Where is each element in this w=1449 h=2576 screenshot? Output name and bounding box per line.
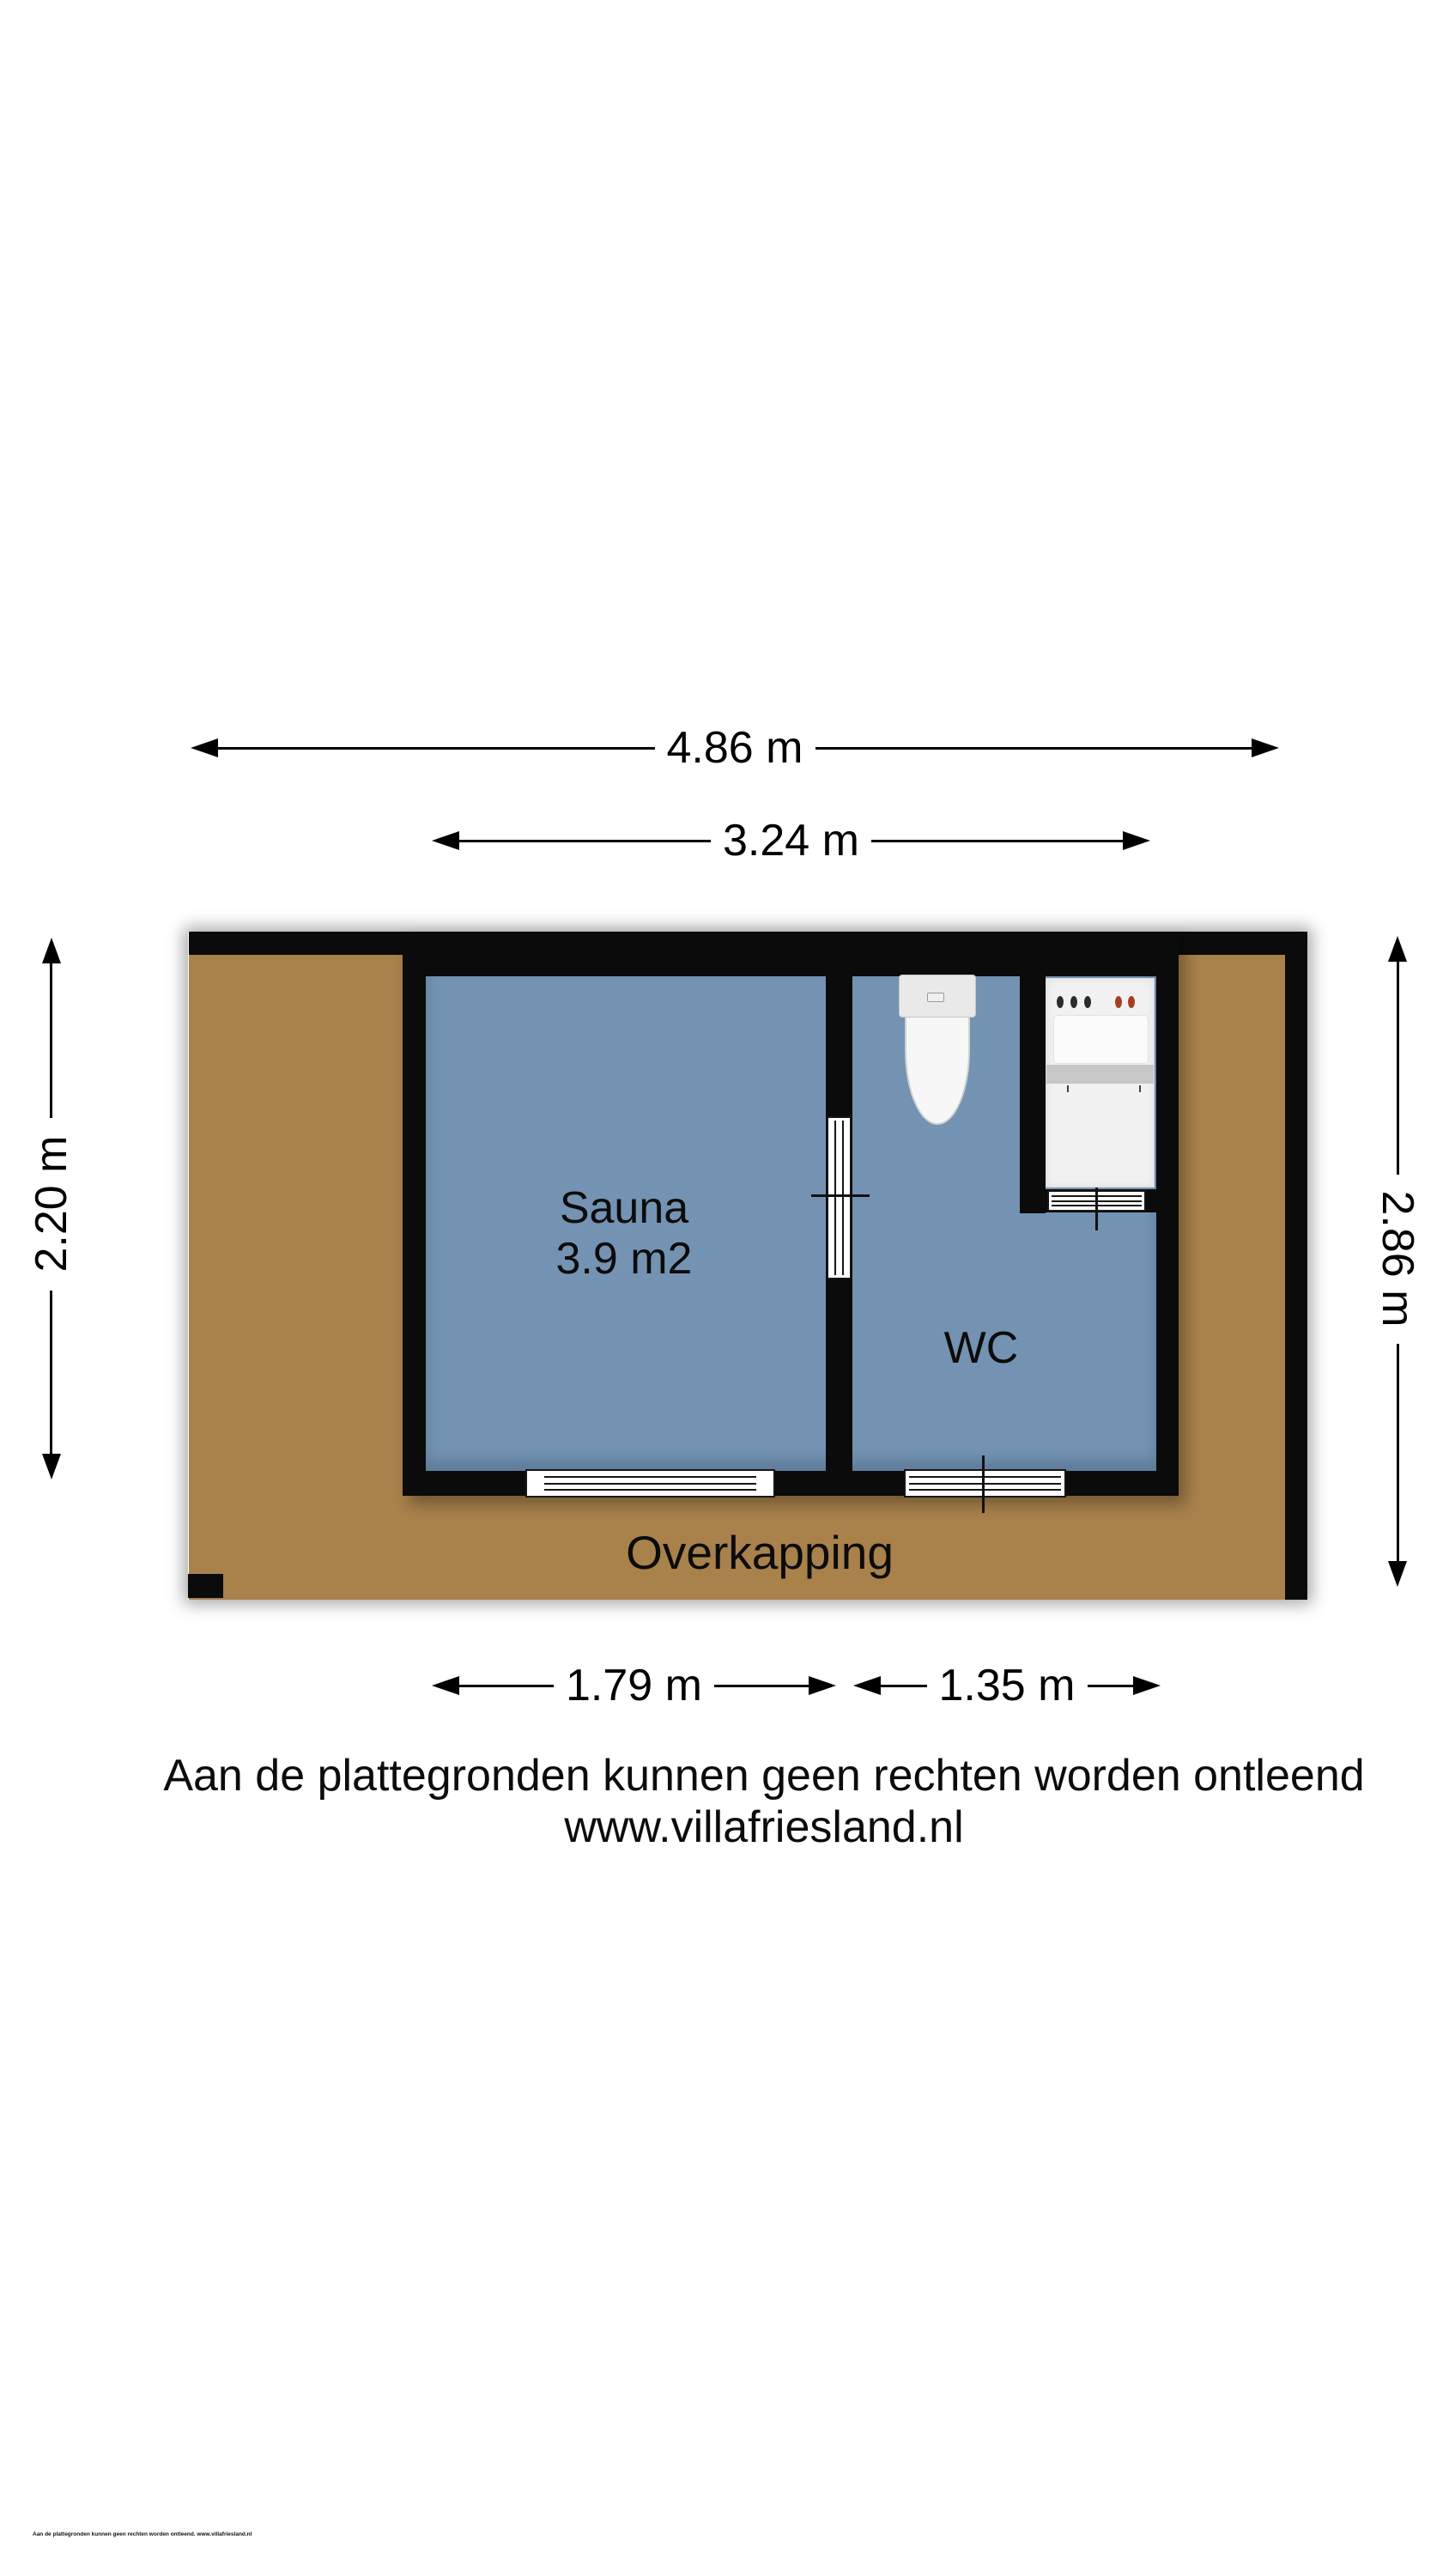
arrow-right-icon (1133, 1676, 1161, 1695)
washer-divider-band (1046, 1065, 1154, 1084)
floor-plan-page: Sauna 3.9 m2 WC Overkapping 4.86 m 3.24 … (0, 0, 1449, 2576)
disclaimer-text: Aan de plattegronden kunnen geen rechten… (0, 1750, 1449, 1853)
arrow-left-icon (853, 1676, 881, 1695)
dimension-wc-width: 1.35 m (853, 1667, 1161, 1704)
arrow-down-icon (42, 1454, 61, 1479)
disclaimer-line2: www.villafriesland.nl (0, 1801, 1449, 1853)
dimension-sauna-width: 1.79 m (432, 1667, 836, 1704)
dimension-inner-width-label: 3.24 m (723, 815, 859, 866)
washing-machine-icon (1046, 978, 1155, 1188)
niche-wall-left (1020, 976, 1046, 1213)
washer-knob-icon (1057, 996, 1064, 1008)
divider-line-mid-window (811, 1194, 870, 1197)
arrow-right-icon (1252, 738, 1279, 757)
overkapping-label: Overkapping (626, 1525, 894, 1580)
arrow-up-icon (1388, 936, 1407, 962)
washer-lid-panel (1053, 1015, 1149, 1064)
window-wc-south (904, 1469, 1066, 1498)
washer-mark (1139, 1085, 1141, 1092)
sauna-area-label: 3.9 m2 (556, 1233, 693, 1285)
arrow-down-icon (1388, 1561, 1407, 1587)
washer-mark (1067, 1085, 1069, 1092)
washer-knob-red-icon (1128, 996, 1135, 1008)
dimension-inner-width: 3.24 m (432, 822, 1150, 860)
arrow-left-icon (432, 831, 459, 850)
dimension-wc-width-label: 1.35 m (939, 1660, 1076, 1711)
arrow-right-icon (1123, 831, 1150, 850)
window-sauna-wc (827, 1116, 852, 1279)
washer-knob-red-icon (1115, 996, 1122, 1008)
footer-fineprint: Aan de plattegronden kunnen geen rechten… (33, 2531, 252, 2537)
arrow-right-icon (809, 1676, 836, 1695)
window-sauna-south (525, 1469, 775, 1498)
east-boundary-wall (1285, 932, 1307, 1600)
wc-label: WC (944, 1322, 1019, 1374)
divider-line-wc-window (982, 1455, 985, 1513)
washer-knob-icon (1084, 996, 1091, 1008)
dimension-total-width: 4.86 m (191, 729, 1279, 767)
arrow-left-icon (432, 1676, 459, 1695)
dimension-right-height-label: 2.86 m (1372, 1191, 1423, 1327)
dimension-total-width-label: 4.86 m (667, 722, 803, 774)
toilet-flush-button-icon (927, 993, 944, 1002)
sauna-label: Sauna (560, 1182, 688, 1234)
arrow-left-icon (191, 738, 218, 757)
disclaimer-line1: Aan de plattegronden kunnen geen rechten… (0, 1750, 1449, 1801)
washer-knob-icon (1070, 996, 1077, 1008)
dimension-left-height-label: 2.20 m (26, 1136, 77, 1273)
corner-post (188, 1574, 223, 1598)
dimension-sauna-width-label: 1.79 m (566, 1660, 702, 1711)
arrow-up-icon (42, 938, 61, 963)
